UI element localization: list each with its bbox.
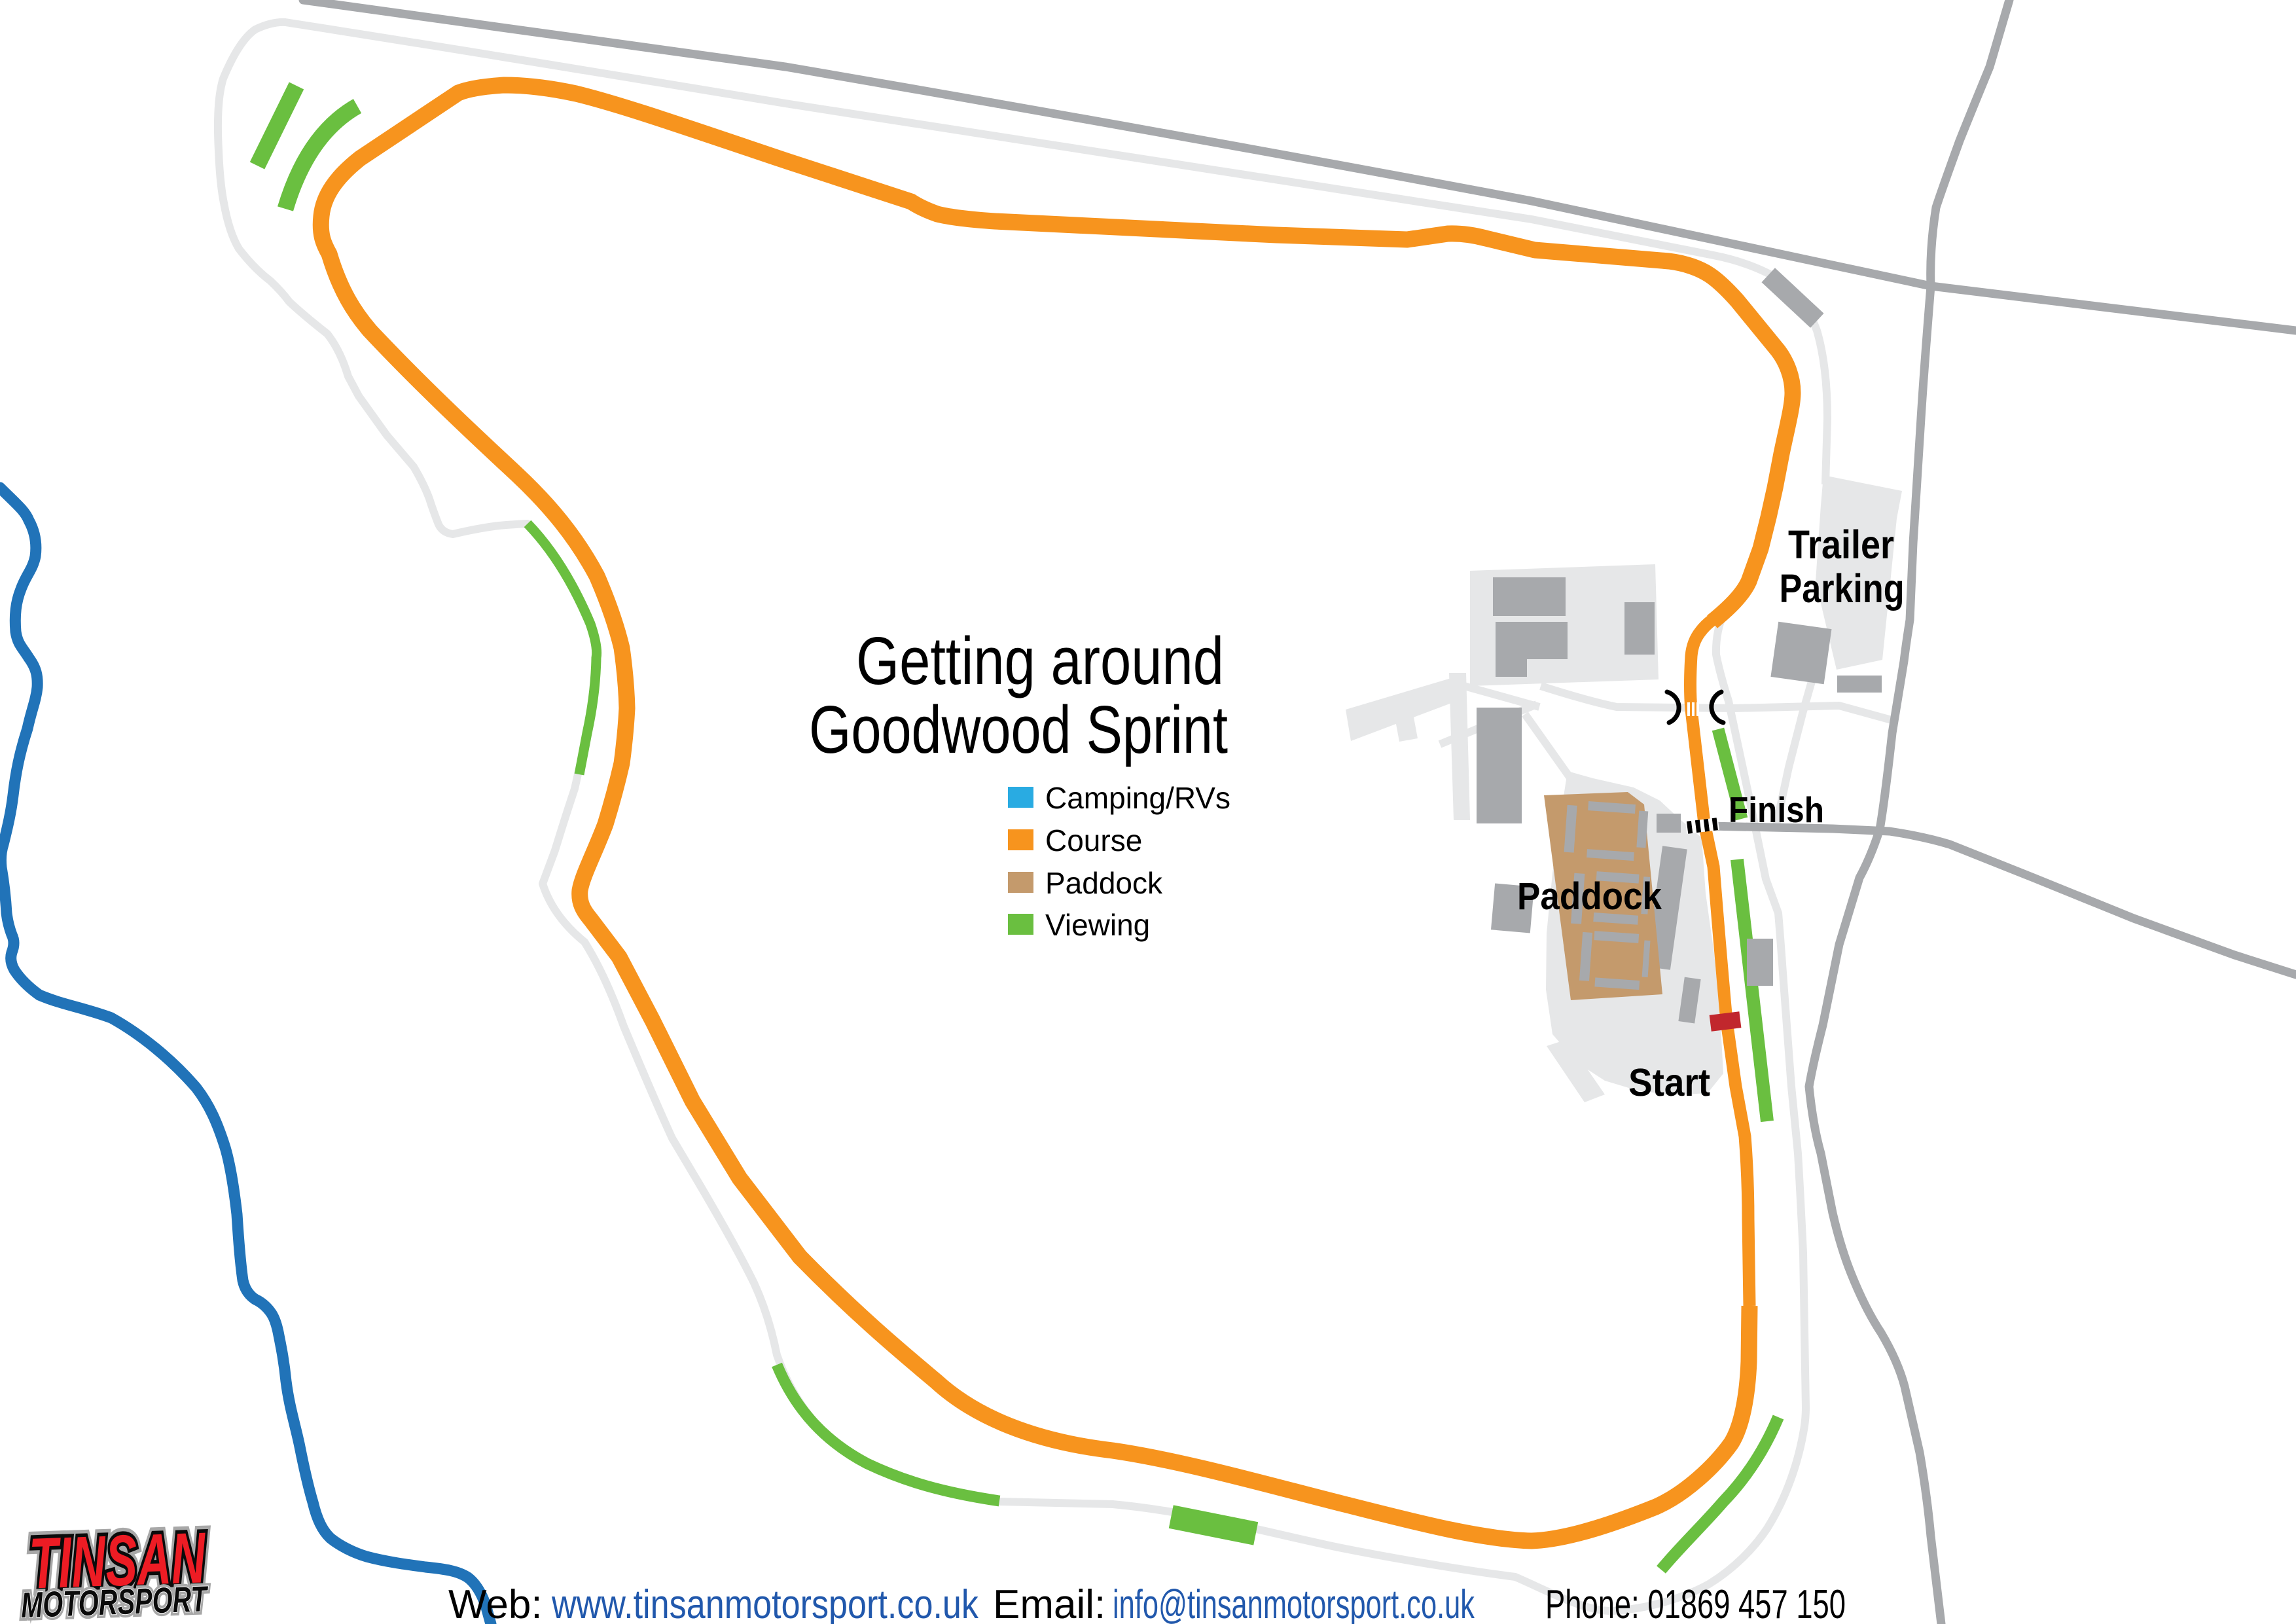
svg-text:Paddock: Paddock — [1045, 866, 1163, 900]
svg-text:Parking: Parking — [1780, 566, 1905, 611]
svg-text:Trailer: Trailer — [1788, 522, 1894, 567]
svg-text:Web:: Web: — [448, 1582, 543, 1624]
svg-text:Viewing: Viewing — [1045, 908, 1150, 942]
svg-text:Getting around: Getting around — [856, 623, 1224, 698]
svg-text:Goodwood Sprint: Goodwood Sprint — [809, 692, 1228, 767]
svg-text:Finish: Finish — [1729, 789, 1824, 830]
svg-text:Camping/RVs: Camping/RVs — [1045, 781, 1230, 815]
svg-text:Email:: Email: — [993, 1582, 1105, 1624]
svg-text:Paddock: Paddock — [1517, 875, 1662, 918]
svg-text:Start: Start — [1628, 1061, 1710, 1104]
svg-text:info@tinsanmotorsport.co.uk: info@tinsanmotorsport.co.uk — [1113, 1582, 1475, 1624]
svg-text:Course: Course — [1045, 823, 1142, 857]
svg-text:MOTORSPORT: MOTORSPORT — [20, 1578, 209, 1624]
svg-text:Phone: 01869 457 150: Phone: 01869 457 150 — [1545, 1582, 1846, 1624]
svg-text:www.tinsanmotorsport.co.uk: www.tinsanmotorsport.co.uk — [551, 1582, 979, 1624]
